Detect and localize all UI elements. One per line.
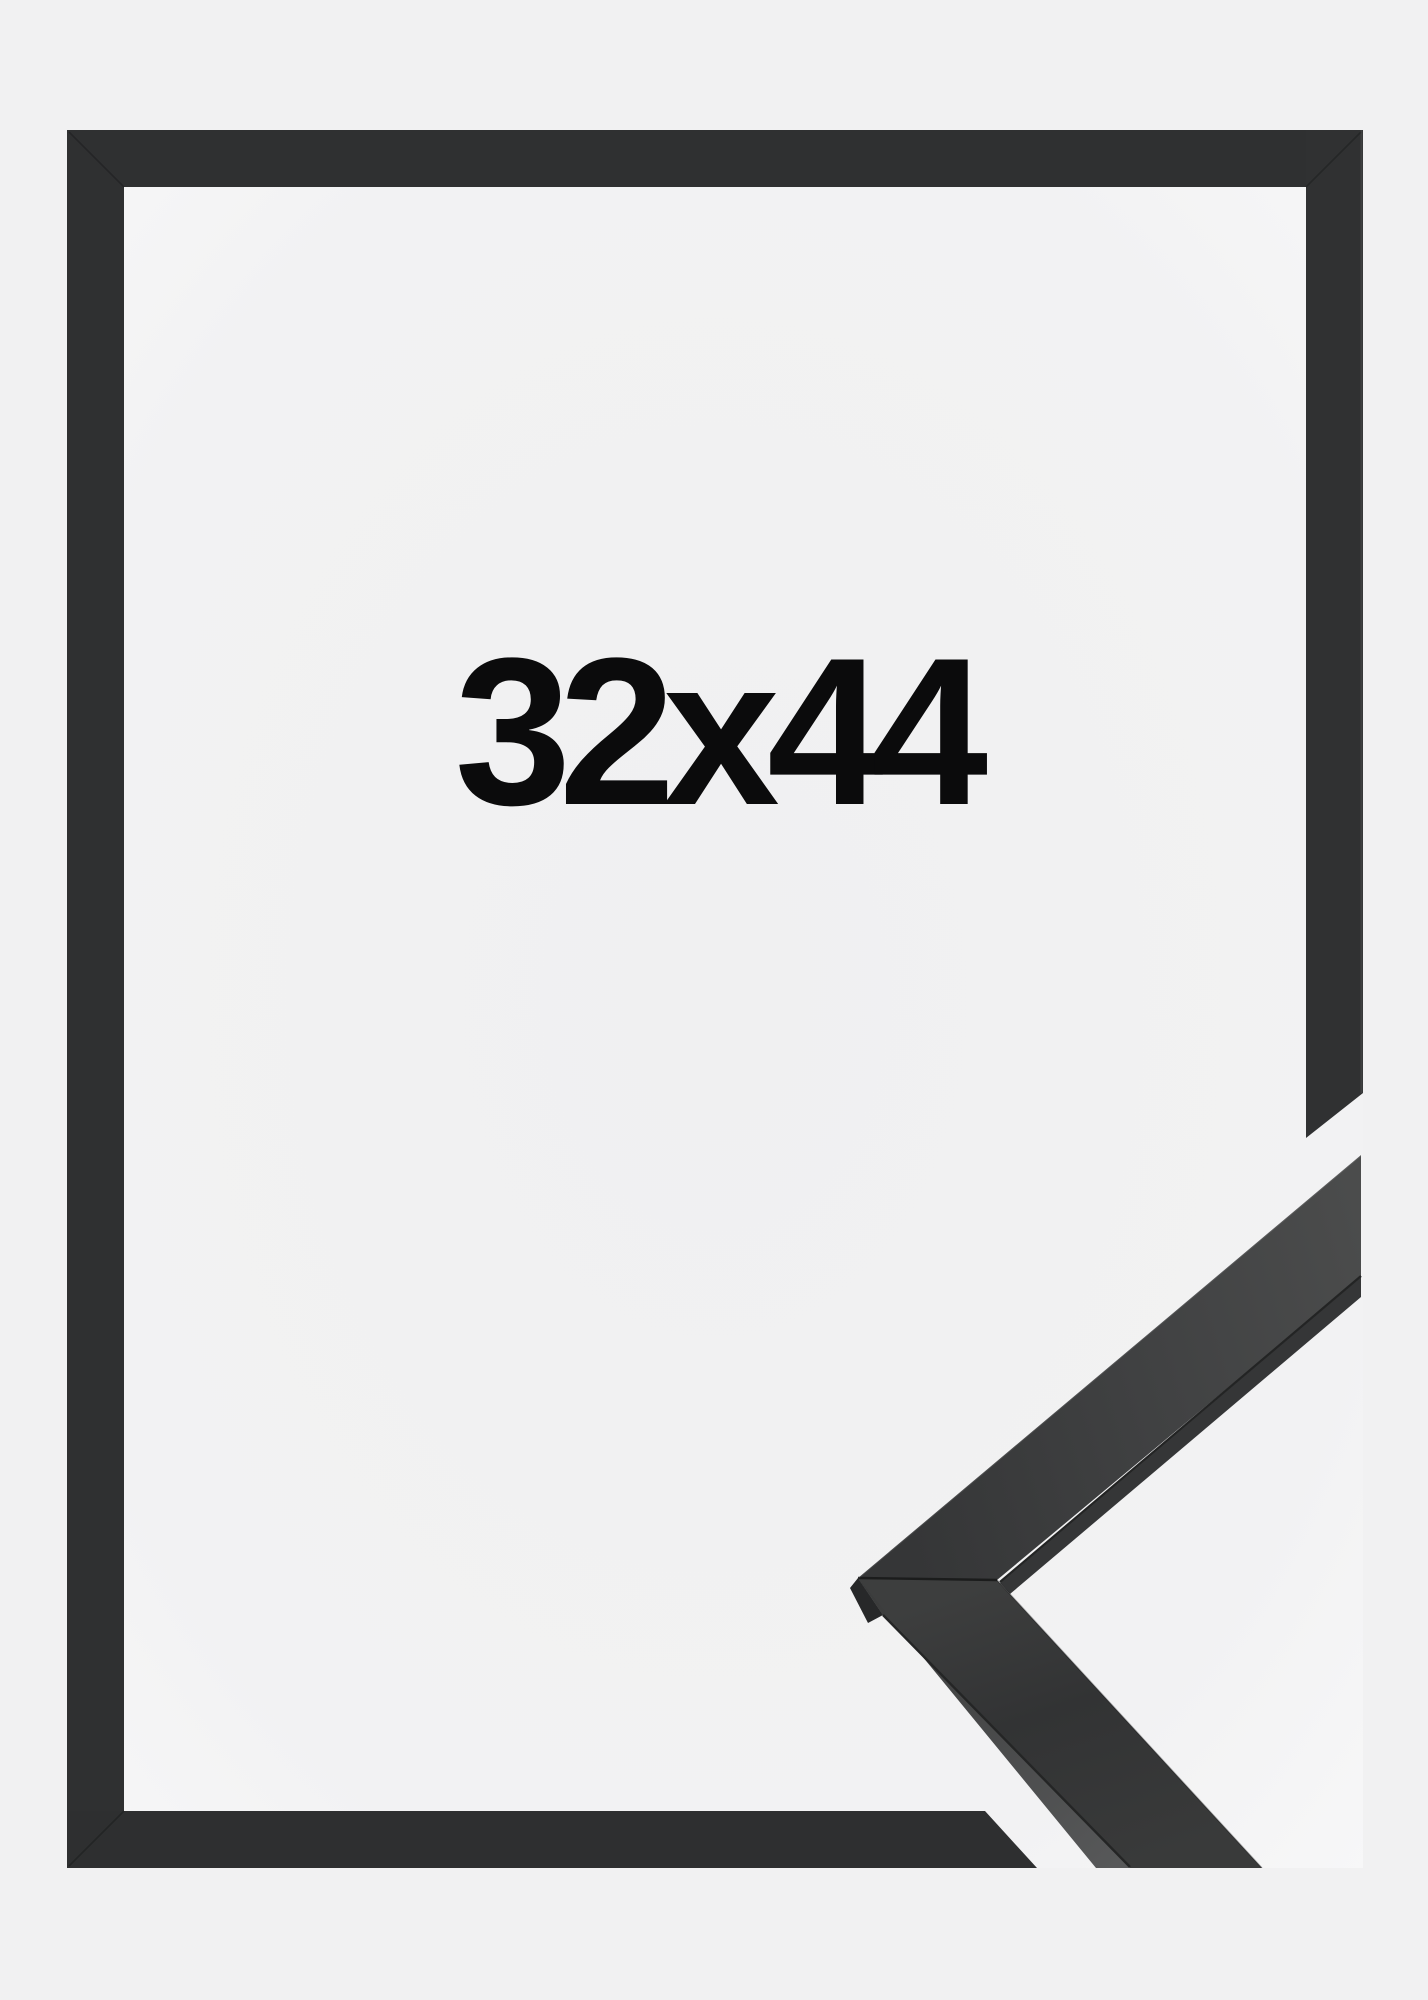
frame-bottom-bar xyxy=(67,1811,1037,1868)
page: { "product_photo": { "size_label": "32x4… xyxy=(0,0,1428,2000)
photo-background xyxy=(67,130,1363,1868)
frame-left-bar xyxy=(67,130,124,1868)
product-photo: 32x44 xyxy=(67,130,1363,1868)
frame-top-bar xyxy=(67,130,1363,187)
size-label: 32x44 xyxy=(67,627,1363,837)
frame-illustration xyxy=(67,130,1363,1868)
